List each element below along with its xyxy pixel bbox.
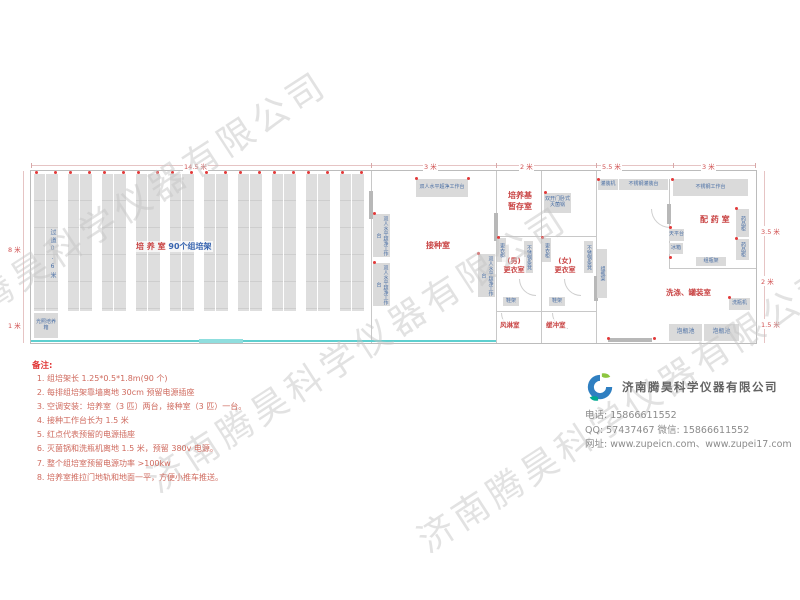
notes-list: 组培架长 1.25*0.5*1.8m(90 个) 每排组培架靠墙离地 30cm …	[32, 374, 342, 482]
culture-rack	[238, 174, 262, 311]
floor-plan: 14.5 米 3 米 2 米 5.5 米 3 米 8 米 1 米 3.5 米 2…	[30, 170, 757, 344]
power-socket-dot	[653, 337, 656, 340]
dim-right-3-5m: 3.5 米	[760, 226, 781, 236]
dimension-line-left	[23, 171, 24, 343]
dim-tick	[496, 163, 497, 168]
notes-title: 备注:	[32, 359, 342, 371]
dim-top-2m: 2 米	[519, 161, 534, 171]
women-changing-room-label: (女) 更衣室	[553, 257, 577, 276]
culture-room-name: 培 养 室	[136, 242, 166, 251]
power-socket-dot	[497, 236, 500, 239]
laminar-flow-bench-left-1: 双人水平超净工作台	[373, 214, 390, 257]
bottle-soaking-pool-1: 泡瓶池	[669, 324, 702, 341]
door-arc	[519, 279, 536, 296]
women-shoe-rack: 鞋架	[549, 297, 565, 306]
company-block: 济南腾昊科学仪器有限公司 电话: 15866611552 QQ: 5743746…	[585, 372, 792, 453]
power-socket-dot	[35, 171, 38, 174]
power-socket-dot	[307, 171, 310, 174]
culture-room-label: 培 养 室 90个组培架	[135, 241, 213, 252]
aisle-width-label: 过道0.6米	[48, 229, 57, 280]
power-socket-dot	[544, 191, 547, 194]
power-socket-dot	[54, 171, 57, 174]
power-socket-dot	[156, 171, 159, 174]
power-socket-dot	[669, 226, 672, 229]
air-shower-room-label: 风淋室	[499, 319, 521, 329]
filling-machine: 灌装机	[598, 179, 618, 190]
lighted-incubator: 光照培养箱	[34, 313, 58, 338]
power-socket-dot	[88, 171, 91, 174]
power-socket-dot	[415, 177, 418, 180]
women-label-line2: 更衣室	[554, 266, 576, 275]
note-item: 组培架长 1.25*0.5*1.8m(90 个)	[47, 374, 342, 384]
power-socket-dot	[373, 261, 376, 264]
power-socket-dot	[735, 237, 738, 240]
men-label-line2: 更衣室	[503, 266, 525, 275]
medium-storage-line2: 暂存室	[500, 202, 540, 213]
power-socket-dot	[69, 171, 72, 174]
door-arc	[651, 209, 670, 228]
fridge: 冰箱	[669, 243, 683, 254]
medicine-cabinet-2: 药品柜	[736, 239, 749, 260]
power-socket-dot	[477, 252, 480, 255]
sliding-door	[199, 339, 243, 343]
power-socket-dot	[171, 171, 174, 174]
dim-left-8m: 8 米	[7, 244, 22, 254]
dim-right-2m: 2 米	[760, 276, 775, 286]
medium-storage-room-label: 培养基 暂存室	[499, 191, 541, 213]
note-item: 灭菌锅和洗瓶机离地 1.5 米，预留 380v 电源。	[47, 444, 342, 454]
buffer-room-label: 缓冲室	[545, 319, 567, 329]
wall	[496, 236, 596, 237]
culture-rack	[340, 174, 364, 311]
power-socket-dot	[292, 171, 295, 174]
dim-top-5-5m: 5.5 米	[601, 161, 622, 171]
power-socket-dot	[190, 171, 193, 174]
steel-worktable: 不锈钢工作台	[673, 179, 748, 196]
note-item: 整个组培室预留电源功率 >100kw	[47, 459, 342, 469]
power-socket-dot	[541, 236, 544, 239]
culture-room-rack-count: 90个组培架	[168, 242, 211, 251]
power-socket-dot	[669, 256, 672, 259]
inoculation-room-label: 接种室	[425, 240, 451, 251]
dim-top-3m: 3 米	[423, 161, 438, 171]
company-logo-icon	[585, 372, 615, 402]
note-item: 培养室推拉门地轨和地面一平，方便小推车推送。	[47, 473, 342, 483]
power-socket-dot	[597, 178, 600, 181]
company-websites: 网址: www.zupeicn.com、www.zupei17.com	[585, 438, 792, 453]
power-socket-dot	[735, 207, 738, 210]
men-changing-room-label: (男) 更衣室	[502, 257, 526, 276]
culture-rack	[102, 174, 126, 311]
laminar-flow-bench-left-2: 双人水平超净工作台	[373, 263, 390, 306]
bottle-rack-vertical: 组瓶架	[597, 249, 607, 298]
note-item: 红点代表预留的电源插座	[47, 430, 342, 440]
company-name: 济南腾昊科学仪器有限公司	[622, 379, 778, 395]
company-qq-wechat: QQ: 57437467 微信: 15866611552	[585, 424, 792, 439]
door	[608, 338, 652, 342]
power-socket-dot	[239, 171, 242, 174]
sliding-door-track	[31, 340, 496, 342]
power-socket-dot	[326, 171, 329, 174]
power-socket-dot	[224, 171, 227, 174]
dim-right-1-5m: 1.5 米	[760, 319, 781, 329]
double-door-sterilizer: 双开门卧式灭菌锅	[544, 193, 571, 213]
steel-filling-table: 不锈钢灌装台	[619, 179, 668, 190]
note-item: 接种工作台长为 1.5 米	[47, 416, 342, 426]
power-socket-dot	[728, 296, 731, 299]
bottle-washing-machine: 洗瓶机	[729, 298, 750, 310]
wall	[496, 311, 596, 312]
power-socket-dot	[341, 171, 344, 174]
wall	[669, 268, 756, 269]
power-socket-dot	[258, 171, 261, 174]
bottle-soaking-pool-2: 泡瓶池	[704, 324, 739, 341]
laminar-flow-bench-right: 双人水平超净工作台	[478, 254, 495, 297]
power-socket-dot	[467, 177, 470, 180]
dim-tick	[596, 163, 597, 168]
dim-tick	[755, 163, 756, 168]
dimension-line-right	[764, 171, 765, 343]
note-item: 空调安装：培养室（3 匹）两台，接种室（3 匹）一台。	[47, 402, 342, 412]
power-socket-dot	[122, 171, 125, 174]
dimension-line-top	[31, 165, 756, 166]
power-socket-dot	[205, 171, 208, 174]
balance-table: 天平台	[669, 229, 684, 241]
dim-tick	[371, 163, 372, 168]
women-locker: 更衣柜	[542, 238, 551, 262]
laminar-flow-bench-top: 双人水平超净工作台	[416, 179, 468, 197]
culture-room-racks	[31, 171, 371, 343]
bottle-rack-horizontal: 组瓶架	[696, 257, 726, 266]
power-socket-dot	[373, 212, 376, 215]
notes-block: 备注: 组培架长 1.25*0.5*1.8m(90 个) 每排组培架靠墙离地 3…	[32, 359, 342, 487]
dim-left-1m: 1 米	[7, 320, 22, 330]
power-socket-dot	[607, 337, 610, 340]
culture-rack	[272, 174, 296, 311]
dim-tick	[31, 163, 32, 168]
dim-tick	[673, 163, 674, 168]
dim-top-14-5m: 14.5 米	[183, 161, 208, 171]
men-shoe-rack: 鞋架	[503, 297, 519, 306]
note-item: 每排组培架靠墙离地 30cm 预留电源插座	[47, 388, 342, 398]
culture-rack	[68, 174, 92, 311]
power-socket-dot	[103, 171, 106, 174]
power-socket-dot	[137, 171, 140, 174]
dim-top-3m-right: 3 米	[701, 161, 716, 171]
women-steel-bench: 不锈钢条凳	[584, 241, 593, 273]
company-phone: 电话: 15866611552	[585, 409, 792, 424]
power-socket-dot	[273, 171, 276, 174]
medium-storage-line1: 培养基	[500, 191, 540, 202]
medicine-cabinet-1: 药品柜	[736, 209, 749, 237]
power-socket-dot	[360, 171, 363, 174]
washing-room-label: 洗涤、罐装室	[665, 287, 712, 298]
prep-room-label: 配 药 室	[699, 214, 731, 225]
door-arc	[564, 279, 581, 296]
culture-rack	[306, 174, 330, 311]
power-socket-dot	[671, 178, 674, 181]
